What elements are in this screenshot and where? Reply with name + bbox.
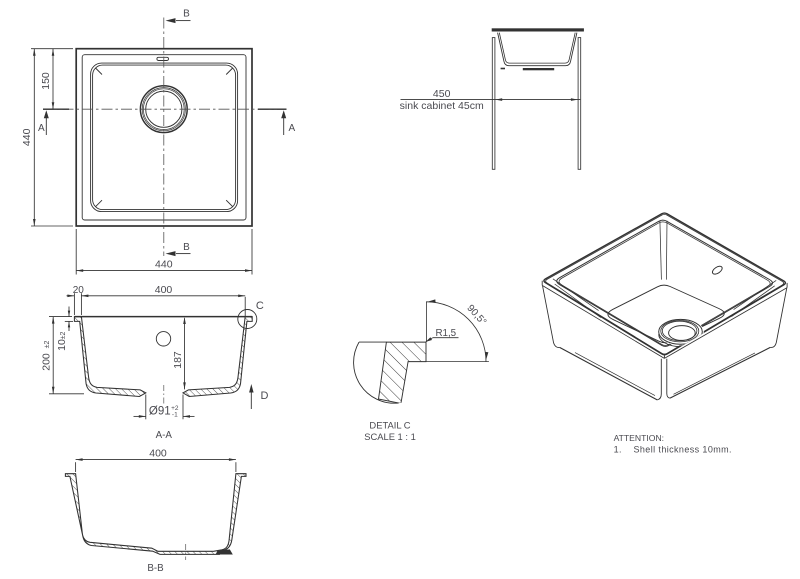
- svg-text:1. Shell thickness 10mm.: 1. Shell thickness 10mm.: [614, 445, 732, 455]
- svg-text:440: 440: [155, 259, 173, 271]
- svg-text:-1: -1: [172, 411, 178, 418]
- svg-text:200: 200: [41, 353, 53, 371]
- svg-text:SCALE 1 : 1: SCALE 1 : 1: [364, 431, 416, 442]
- svg-text:450: 450: [433, 88, 451, 100]
- svg-text:187: 187: [172, 351, 184, 369]
- svg-text:90,5°: 90,5°: [464, 303, 488, 328]
- svg-text:B: B: [183, 9, 190, 20]
- svg-text:±2: ±2: [60, 332, 67, 340]
- svg-text:400: 400: [155, 284, 173, 296]
- svg-text:150: 150: [40, 72, 52, 90]
- svg-text:A: A: [38, 123, 45, 134]
- svg-text:ATTENTION:: ATTENTION:: [614, 433, 664, 443]
- svg-text:440: 440: [21, 128, 33, 146]
- svg-text:A-A: A-A: [156, 430, 173, 441]
- svg-text:Ø91: Ø91: [149, 406, 171, 418]
- svg-text:D: D: [261, 390, 269, 402]
- svg-text:B: B: [183, 242, 190, 253]
- svg-text:±2: ±2: [44, 341, 51, 349]
- svg-text:A: A: [289, 123, 296, 134]
- svg-text:C: C: [256, 300, 264, 312]
- svg-text:R1,5: R1,5: [435, 328, 456, 339]
- svg-text:10: 10: [56, 339, 68, 351]
- svg-text:B-B: B-B: [147, 563, 164, 574]
- svg-text:DETAIL C: DETAIL C: [369, 419, 410, 430]
- svg-text:400: 400: [149, 447, 167, 459]
- svg-text:sink cabinet 45cm: sink cabinet 45cm: [400, 100, 484, 112]
- svg-text:20: 20: [73, 285, 85, 296]
